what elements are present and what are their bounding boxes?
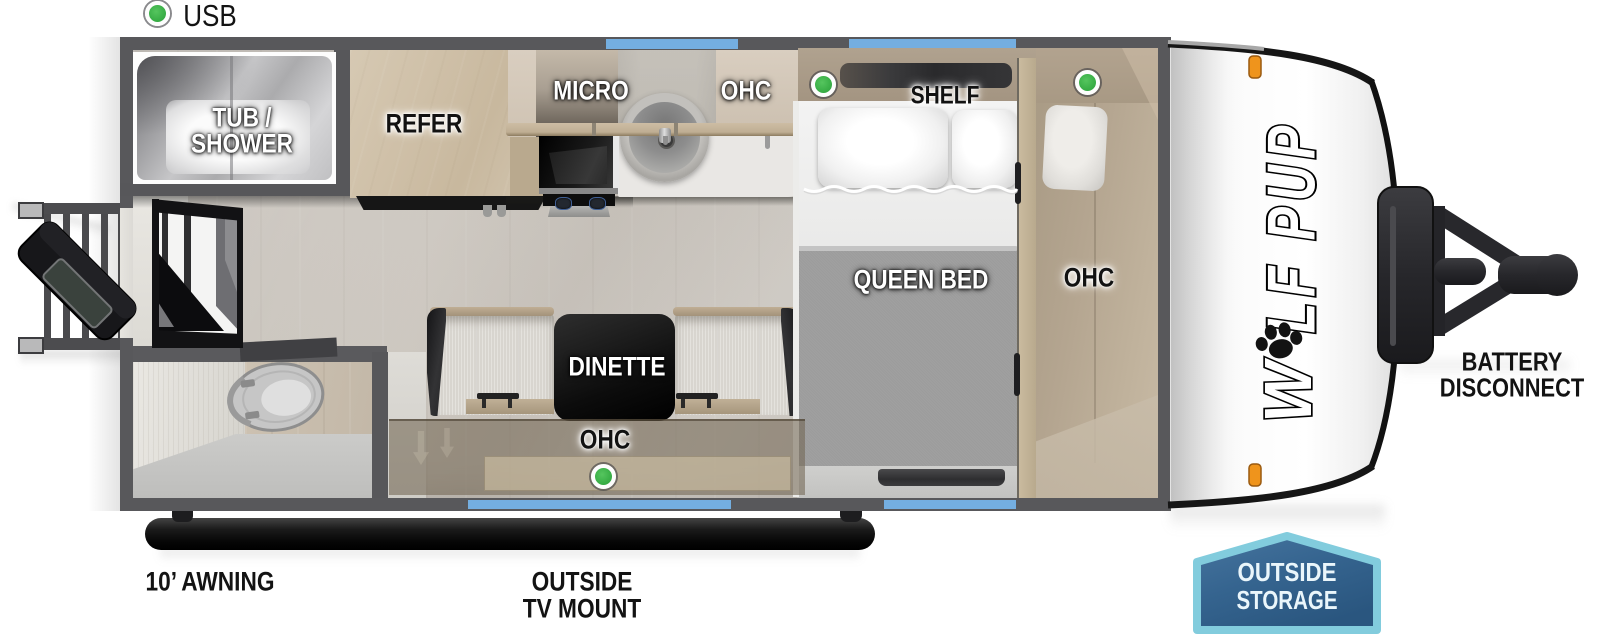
svg-text:OUTSIDE: OUTSIDE [1238, 557, 1337, 587]
svg-text:W: W [1251, 357, 1326, 422]
svg-text:STORAGE: STORAGE [1237, 585, 1338, 615]
svg-text:LF PUP: LF PUP [1253, 120, 1329, 334]
